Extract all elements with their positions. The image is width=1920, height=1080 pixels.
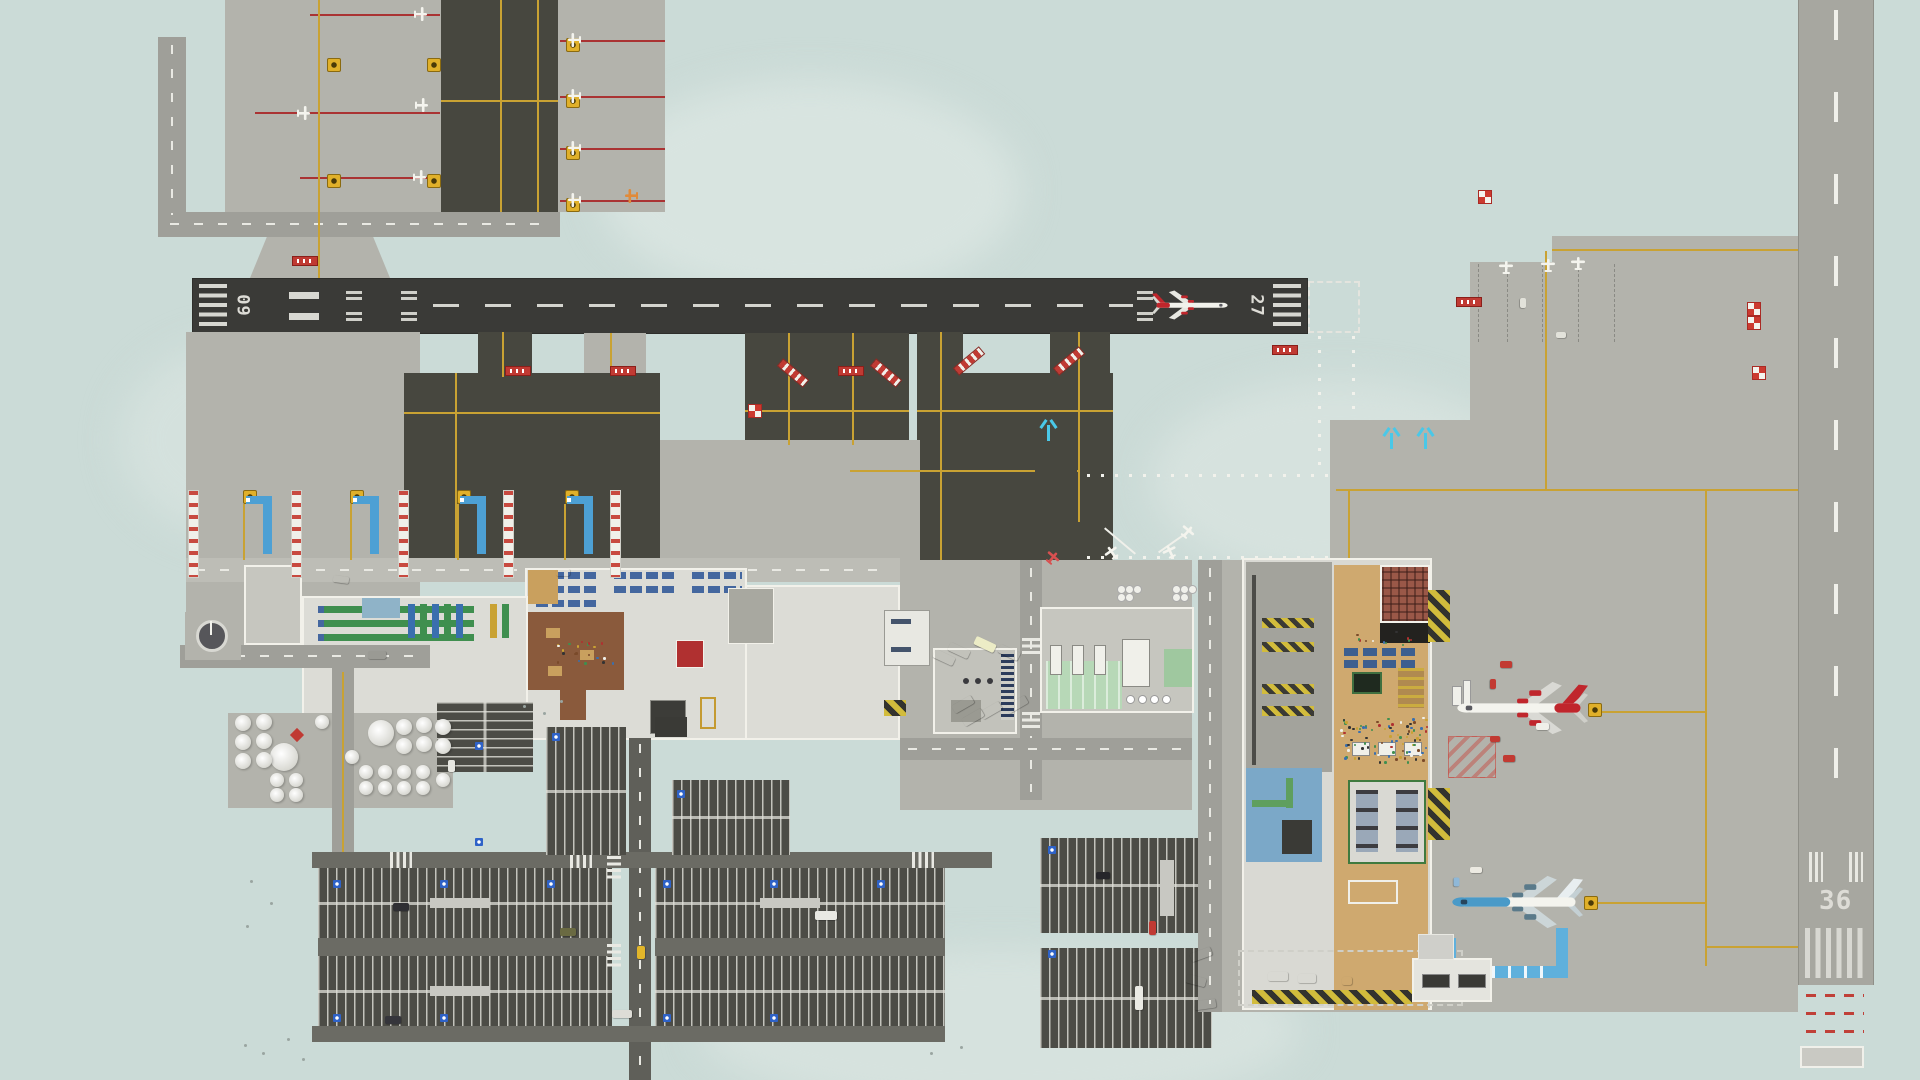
- person-dot: [1420, 727, 1423, 730]
- vehicle[interactable]: [1149, 921, 1156, 935]
- person-dot: [1384, 761, 1387, 764]
- person-dot: [1409, 723, 1412, 726]
- person-dot: [588, 654, 591, 657]
- jet-bridge[interactable]: [584, 496, 593, 554]
- person-dot: [1391, 723, 1394, 726]
- person-dot: [1364, 742, 1367, 745]
- person-dot: [1385, 642, 1388, 645]
- ga-plane[interactable]: [1569, 255, 1587, 273]
- vehicle[interactable]: [612, 1010, 632, 1018]
- vehicle[interactable]: [1536, 723, 1549, 730]
- vehicle[interactable]: [1342, 977, 1352, 985]
- vehicle[interactable]: [1520, 298, 1526, 308]
- ga-plane[interactable]: [566, 87, 584, 105]
- person-dot: [1412, 718, 1415, 721]
- person-dot: [601, 642, 604, 645]
- checkerboard-marker: [1747, 302, 1761, 316]
- vehicle[interactable]: [997, 644, 1021, 661]
- stop-bar: [870, 358, 902, 388]
- stand-number-sign[interactable]: [1584, 896, 1598, 910]
- person-dot: [1406, 725, 1409, 728]
- person-dot: [578, 660, 581, 663]
- stand-lead-line: [457, 504, 459, 560]
- jet-bridge[interactable]: [263, 496, 272, 554]
- person-dot: [1402, 750, 1405, 753]
- ga-plane[interactable]: [1539, 257, 1557, 275]
- stand-number-sign[interactable]: [427, 58, 441, 72]
- vehicle[interactable]: [1193, 999, 1216, 1011]
- handicap-badge: [663, 880, 671, 888]
- ga-plane[interactable]: [411, 5, 429, 23]
- vehicle[interactable]: [448, 760, 455, 772]
- ga-plane[interactable]: [566, 191, 584, 209]
- fuel-tank[interactable]: [435, 738, 451, 754]
- person-dot: [1388, 755, 1391, 758]
- person-dot: [1407, 733, 1410, 736]
- person-dot: [1372, 640, 1375, 643]
- person-dot: [1425, 747, 1428, 750]
- stand-lead-line: [564, 504, 566, 560]
- person-dot: [1344, 757, 1347, 760]
- person-dot: [1410, 639, 1413, 642]
- person-dot: [596, 657, 599, 660]
- handicap-badge: [663, 1014, 671, 1022]
- deice-mark: [1426, 427, 1434, 437]
- fuel-tank[interactable]: [235, 753, 251, 769]
- handicap-badge: [552, 733, 560, 741]
- person-dot: [575, 652, 578, 655]
- person-dot: [1356, 727, 1359, 730]
- jet-bridge-cab: [567, 498, 571, 502]
- red-white-ladder-strip: [610, 490, 621, 578]
- jet-bridge-cab: [246, 498, 250, 502]
- person-dot: [1352, 728, 1355, 731]
- stop-bar: [1053, 346, 1085, 376]
- jet-bridge[interactable]: [477, 496, 486, 554]
- person-dot: [562, 652, 565, 655]
- person-dot: [1419, 734, 1422, 737]
- fuel-tank[interactable]: [397, 781, 411, 795]
- checkerboard-marker: [1747, 316, 1761, 330]
- person-dot: [1422, 717, 1425, 720]
- fuel-tank[interactable]: [436, 773, 450, 787]
- tire-stack: [1180, 593, 1189, 602]
- fuel-tank[interactable]: [235, 715, 251, 731]
- person-dot: [1392, 751, 1395, 754]
- handicap-badge: [677, 790, 685, 798]
- vehicle[interactable]: [1189, 947, 1213, 963]
- deice-mark: [1392, 427, 1400, 437]
- ga-plane[interactable]: [1039, 545, 1064, 570]
- fuel-tank[interactable]: [396, 738, 412, 754]
- person-dot: [577, 645, 580, 648]
- stand-lead-line: [243, 504, 245, 560]
- tire-stack: [1188, 585, 1197, 594]
- fuel-tank[interactable]: [416, 781, 430, 795]
- runway-hold-sign[interactable]: [838, 366, 864, 376]
- person-dot: [1365, 640, 1368, 643]
- person-dot: [1425, 730, 1428, 733]
- handicap-badge: [475, 838, 483, 846]
- fuel-tank[interactable]: [315, 715, 329, 729]
- fuel-tank[interactable]: [378, 781, 392, 795]
- ground-speck: [960, 1046, 963, 1049]
- ground-speck: [302, 1058, 305, 1061]
- vehicle[interactable]: [1185, 974, 1207, 988]
- ga-plane[interactable]: [1099, 540, 1124, 565]
- stand-number-sign[interactable]: [427, 174, 441, 188]
- handicap-badge: [440, 1014, 448, 1022]
- person-dot: [1358, 731, 1361, 734]
- red-white-ladder-strip: [188, 490, 199, 578]
- person-dot: [1350, 739, 1353, 742]
- ground-speck: [246, 925, 249, 928]
- person-dot: [1354, 744, 1357, 747]
- person-dot: [1389, 735, 1392, 738]
- ground-speck: [930, 1052, 933, 1055]
- vehicle[interactable]: [1500, 661, 1512, 668]
- person-dot: [1374, 745, 1377, 748]
- jet-bridge-cab: [353, 498, 357, 502]
- vehicle[interactable]: [1503, 755, 1515, 762]
- handicap-badge: [770, 1014, 778, 1022]
- fuel-tank[interactable]: [368, 720, 394, 746]
- person-dot: [1410, 727, 1413, 730]
- jet-bridge[interactable]: [370, 496, 379, 554]
- stand-number-sign[interactable]: [327, 58, 341, 72]
- deice-mark: [1424, 433, 1427, 449]
- checkerboard-marker: [1752, 366, 1766, 380]
- vehicle[interactable]: [815, 911, 837, 920]
- person-dot: [1358, 638, 1361, 641]
- ground-speck: [560, 700, 563, 703]
- red-white-ladder-strip: [398, 490, 409, 578]
- person-dot: [1378, 724, 1381, 727]
- person-dot: [1347, 744, 1350, 747]
- vehicle[interactable]: [637, 946, 645, 959]
- person-dot: [1384, 728, 1387, 731]
- ga-plane[interactable]: [294, 104, 312, 122]
- person-dot: [1421, 752, 1424, 755]
- vehicle[interactable]: [1005, 695, 1029, 714]
- vehicle[interactable]: [333, 575, 350, 584]
- person-dot: [1379, 761, 1382, 764]
- ga-plane[interactable]: [1497, 259, 1515, 277]
- vehicle[interactable]: [1298, 974, 1316, 983]
- vehicle[interactable]: [1096, 872, 1110, 879]
- fuel-tank[interactable]: [397, 765, 411, 779]
- checkerboard-marker: [1478, 190, 1492, 204]
- vehicle[interactable]: [1490, 679, 1496, 689]
- person-dot: [1391, 740, 1394, 743]
- person-dot: [1343, 732, 1346, 735]
- person-dot: [1345, 721, 1348, 724]
- vehicle[interactable]: [556, 569, 570, 576]
- handicap-badge: [475, 742, 483, 750]
- person-dot: [1347, 749, 1350, 752]
- ga-plane[interactable]: [410, 168, 428, 186]
- fuel-tank[interactable]: [359, 765, 373, 779]
- person-dot: [603, 657, 606, 660]
- person-dot: [1391, 730, 1394, 733]
- person-dot: [1422, 759, 1425, 762]
- person-dot: [1415, 758, 1418, 761]
- person-dot: [1348, 726, 1351, 729]
- tire-stack: [1133, 585, 1142, 594]
- deice-mark: [1047, 425, 1050, 441]
- runway-hold-sign[interactable]: [1272, 345, 1298, 355]
- person-dot: [1408, 751, 1411, 754]
- vehicle[interactable]: [1268, 972, 1288, 981]
- ground-speck: [262, 1052, 265, 1055]
- ga-plane[interactable]: [623, 187, 641, 205]
- deice-mark: [1049, 419, 1057, 429]
- generated-objects-layer: [0, 0, 1920, 1080]
- person-dot: [1425, 719, 1428, 722]
- stand-number-sign[interactable]: [327, 174, 341, 188]
- person-dot: [1395, 740, 1398, 743]
- ga-plane[interactable]: [1158, 540, 1182, 564]
- person-dot: [1406, 736, 1409, 739]
- person-dot: [568, 643, 571, 646]
- vehicle[interactable]: [1470, 867, 1482, 873]
- person-dot: [1367, 746, 1370, 749]
- person-dot: [1400, 721, 1403, 724]
- stand-lead-line: [350, 504, 352, 560]
- person-dot: [1410, 754, 1413, 757]
- ga-plane[interactable]: [1174, 519, 1199, 544]
- vehicle[interactable]: [560, 928, 576, 936]
- tire-stack: [1125, 593, 1134, 602]
- vehicle[interactable]: [961, 708, 985, 727]
- handicap-badge: [333, 880, 341, 888]
- fuel-tank[interactable]: [256, 714, 272, 730]
- person-dot: [1411, 731, 1414, 734]
- stop-bar: [777, 358, 809, 388]
- person-dot: [557, 645, 560, 648]
- handicap-badge: [333, 1014, 341, 1022]
- person-dot: [584, 662, 587, 665]
- person-dot: [1354, 757, 1357, 760]
- fuel-tank[interactable]: [270, 743, 298, 771]
- jet-bridge-cab: [460, 498, 464, 502]
- fuel-tank[interactable]: [270, 788, 284, 802]
- person-dot: [1413, 721, 1416, 724]
- runway-hold-sign[interactable]: [610, 366, 636, 376]
- person-dot: [1356, 634, 1359, 637]
- person-dot: [1362, 726, 1365, 729]
- person-dot: [1395, 631, 1398, 634]
- deice-mark: [1390, 433, 1393, 449]
- person-dot: [581, 641, 584, 644]
- person-dot: [1399, 756, 1402, 759]
- person-dot: [1376, 721, 1379, 724]
- stand-number-sign[interactable]: [1588, 703, 1602, 717]
- vehicle[interactable]: [1135, 986, 1143, 1010]
- person-dot: [1374, 752, 1377, 755]
- red-white-ladder-strip: [291, 490, 302, 578]
- person-dot: [1371, 729, 1374, 732]
- fuel-tank[interactable]: [256, 752, 272, 768]
- person-dot: [1365, 737, 1368, 740]
- fuel-tank[interactable]: [345, 750, 359, 764]
- ground-speck: [250, 880, 253, 883]
- person-dot: [602, 661, 605, 664]
- ground-speck: [244, 1044, 247, 1047]
- handicap-badge: [547, 880, 555, 888]
- person-dot: [1340, 729, 1343, 732]
- fuel-tank[interactable]: [378, 765, 392, 779]
- fuel-tank[interactable]: [235, 734, 251, 750]
- person-dot: [1383, 641, 1386, 644]
- ga-plane[interactable]: [412, 96, 430, 114]
- vehicle[interactable]: [973, 636, 997, 653]
- ground-speck: [287, 1038, 290, 1041]
- person-dot: [1387, 718, 1390, 721]
- stop-bar: [953, 346, 985, 376]
- fuel-tank[interactable]: [396, 719, 412, 735]
- handicap-badge: [440, 880, 448, 888]
- person-dot: [1402, 743, 1405, 746]
- runway-hold-sign[interactable]: [1456, 297, 1482, 307]
- person-dot: [612, 662, 615, 665]
- person-dot: [1361, 747, 1364, 750]
- person-dot: [1399, 736, 1402, 739]
- person-dot: [1390, 746, 1393, 749]
- red-white-ladder-strip: [503, 490, 514, 578]
- fuel-tank[interactable]: [435, 719, 451, 735]
- person-dot: [588, 642, 591, 645]
- fuel-tank[interactable]: [416, 736, 432, 752]
- person-dot: [1407, 761, 1410, 764]
- person-dot: [1417, 749, 1420, 752]
- person-dot: [1377, 754, 1380, 757]
- person-dot: [557, 661, 560, 664]
- vehicle[interactable]: [385, 1016, 401, 1024]
- ga-plane[interactable]: [566, 139, 584, 157]
- fuel-tank[interactable]: [270, 773, 284, 787]
- checkerboard-marker: [748, 404, 762, 418]
- person-dot: [1426, 726, 1429, 729]
- ground-speck: [523, 705, 526, 708]
- fuel-tank[interactable]: [289, 773, 303, 787]
- person-dot: [1413, 744, 1416, 747]
- fuel-tank[interactable]: [256, 733, 272, 749]
- vehicle[interactable]: [1454, 878, 1460, 887]
- runway-hold-sign[interactable]: [505, 366, 531, 376]
- runway-hold-sign[interactable]: [292, 256, 318, 266]
- person-dot: [1381, 742, 1384, 745]
- vehicle[interactable]: [951, 695, 975, 714]
- person-dot: [1341, 735, 1344, 738]
- fuel-tank[interactable]: [416, 765, 430, 779]
- handicap-badge: [877, 880, 885, 888]
- vehicle[interactable]: [1490, 736, 1500, 742]
- ground-speck: [270, 902, 273, 905]
- ground-speck: [543, 712, 546, 715]
- vehicle[interactable]: [393, 903, 409, 911]
- fuel-tank[interactable]: [359, 781, 373, 795]
- person-dot: [1419, 739, 1422, 742]
- person-dot: [1365, 725, 1368, 728]
- person-dot: [1358, 757, 1361, 760]
- handicap-badge: [1048, 846, 1056, 854]
- person-dot: [1402, 644, 1405, 647]
- vehicle[interactable]: [368, 651, 386, 659]
- person-dot: [1395, 758, 1398, 761]
- vehicle[interactable]: [1556, 332, 1566, 338]
- handicap-badge: [1048, 950, 1056, 958]
- person-dot: [1404, 757, 1407, 760]
- fuel-tank[interactable]: [289, 788, 303, 802]
- fuel-tank[interactable]: [416, 717, 432, 733]
- ga-plane[interactable]: [566, 31, 584, 49]
- person-dot: [593, 646, 596, 649]
- airport-map: 09 27: [0, 0, 1920, 1080]
- handicap-badge: [770, 880, 778, 888]
